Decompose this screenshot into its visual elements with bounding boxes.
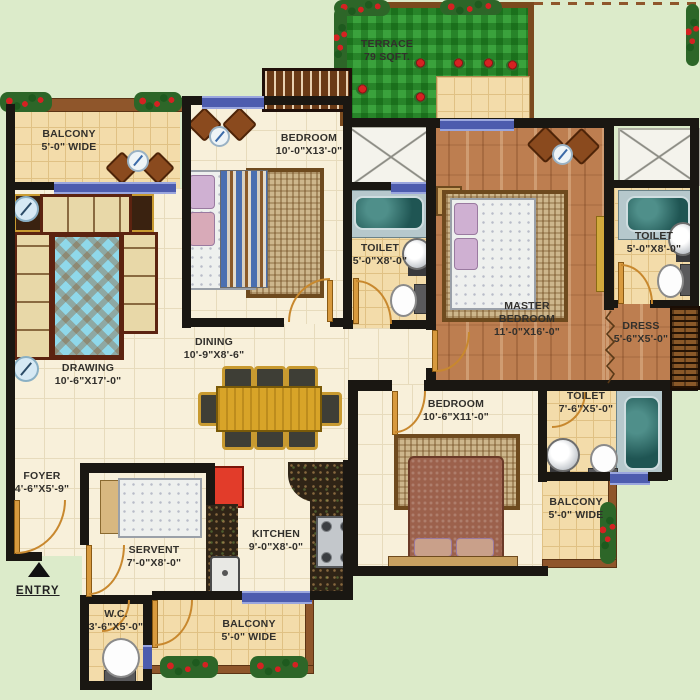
room-dim: 10'-6"X17'-0" <box>44 375 132 388</box>
wall-segment <box>152 591 244 600</box>
wall-segment <box>182 318 284 327</box>
room-label-dining: DINING 10'-9"X8'-6" <box>170 336 258 362</box>
wall-segment <box>538 472 614 481</box>
room-label-dress: DRESS 5'-6"X5'-0" <box>608 320 674 346</box>
room-dim: 5'-0" WIDE <box>30 141 108 154</box>
table-needle <box>558 149 568 160</box>
boundary-dashed-line <box>534 2 700 5</box>
room-dim: 3'-6"X5'-0" <box>86 621 146 634</box>
flower-garland <box>250 656 308 678</box>
room-dim: 5'-6"X5'-0" <box>608 333 674 346</box>
room-name: DRAWING <box>44 362 132 375</box>
toilet-icon <box>390 284 417 317</box>
carpet <box>50 232 124 360</box>
pillow <box>189 212 215 246</box>
ceiling-fan-icon <box>13 196 39 222</box>
room-label-toilet-left: TOILET 5'-0"X8'-0" <box>344 242 416 268</box>
window-glass <box>54 182 176 194</box>
wall-segment <box>143 669 152 690</box>
wall-segment <box>80 463 89 545</box>
room-label-servent: SERVENT 7'-0"X8'-0" <box>114 544 194 570</box>
flower-garland <box>334 8 347 74</box>
room-name: DINING <box>170 336 258 349</box>
flower-icon <box>452 58 465 69</box>
pillow <box>456 538 494 557</box>
pillow <box>100 480 120 534</box>
blanket <box>220 170 268 288</box>
wall-segment <box>614 180 698 188</box>
wall-segment <box>206 463 215 505</box>
room-dim: 10'-6"X11'-0" <box>414 411 498 424</box>
room-label-toilet-bottom: TOILET 7'-6"X5'-0" <box>550 390 622 416</box>
window-glass <box>610 472 650 485</box>
window-glass <box>391 182 427 194</box>
room-label-balcony-top-left: BALCONY 5'-0" WIDE <box>30 128 108 154</box>
room-dim: 5'-0" WIDE <box>204 631 294 644</box>
room-dim: 9'-0"X8'-0" <box>234 541 318 554</box>
flower-icon <box>356 84 369 95</box>
wardrobe-icon <box>262 68 352 112</box>
window-glass <box>202 96 264 109</box>
room-name: TERRACE <box>352 38 422 51</box>
table-needle <box>133 155 143 166</box>
wall-segment <box>604 118 614 310</box>
wall-segment <box>662 380 672 480</box>
bathtub-icon <box>624 396 660 470</box>
room-name: SERVENT <box>114 544 194 557</box>
burner <box>321 521 332 532</box>
pillow <box>414 538 452 557</box>
floor-passage <box>348 328 432 384</box>
flower-garland <box>160 656 218 678</box>
sink-icon <box>546 438 580 472</box>
floor-plan-canvas: BALCONY 5'-0" WIDE TERRACE 79 SQFT. BEDR… <box>0 0 700 700</box>
room-label-balcony-bottom-right: BALCONY 5'-0" WIDE <box>540 496 612 522</box>
flower-icon <box>506 60 519 71</box>
wall-segment <box>348 566 548 576</box>
sofa-icon <box>14 232 52 360</box>
wardrobe-icon <box>670 306 700 390</box>
room-name: MASTER BEDROOM <box>492 300 562 326</box>
pillow <box>189 175 215 209</box>
toilet-icon <box>657 264 684 298</box>
dining-table <box>216 386 322 432</box>
flower-garland <box>440 0 502 15</box>
wall-segment <box>80 463 214 473</box>
entry-label: ENTRY <box>16 585 60 597</box>
flower-icon <box>414 92 427 103</box>
room-label-master-bedroom: MASTER BEDROOM 11'-0"X16'-0" <box>478 300 576 339</box>
room-name: TOILET <box>344 242 416 255</box>
room-label-bedroom-top: BEDROOM 10'-0"X13'-0" <box>272 132 346 158</box>
room-label-wc: W.C. 3'-6"X5'-0" <box>86 608 146 634</box>
flower-garland <box>134 92 182 112</box>
window-glass <box>242 591 312 604</box>
room-dim: 7'-6"X5'-0" <box>550 403 622 416</box>
sofa-icon <box>40 194 132 236</box>
room-label-terrace: TERRACE 79 SQFT. <box>352 38 422 64</box>
toilet-icon <box>590 444 618 474</box>
room-name: DRESS <box>608 320 674 333</box>
room-label-balcony-bottom: BALCONY 5'-0" WIDE <box>204 618 294 644</box>
room-dim: 4'-6"X5'-9" <box>10 483 74 496</box>
sink-drain <box>222 570 228 576</box>
room-name: TOILET <box>618 230 690 243</box>
room-name: BALCONY <box>540 496 612 509</box>
room-label-foyer: FOYER 4'-6"X5'-9" <box>10 470 74 496</box>
wall-segment <box>343 320 353 329</box>
wall-segment <box>614 118 698 126</box>
ceiling-fan-icon <box>13 356 39 382</box>
flower-garland <box>686 4 699 66</box>
flower-icon <box>482 58 495 69</box>
round-table-icon <box>552 144 573 165</box>
fan-needle <box>20 362 32 376</box>
wall-segment <box>426 118 436 330</box>
room-name: BEDROOM <box>272 132 346 145</box>
wall-segment <box>14 182 56 190</box>
round-table-icon <box>127 150 149 172</box>
wall-segment <box>604 300 618 308</box>
room-dim: 7'-0"X8'-0" <box>114 557 194 570</box>
room-dim: 5'-0"X8'-0" <box>618 243 690 256</box>
room-dim: 5'-0" WIDE <box>540 509 612 522</box>
burner <box>321 552 332 563</box>
sofa-icon <box>118 232 158 334</box>
room-name: TOILET <box>550 390 622 403</box>
pillow <box>454 238 478 270</box>
room-name: BALCONY <box>204 618 294 631</box>
window-glass <box>440 119 514 131</box>
entry-arrow-icon <box>28 562 50 577</box>
room-label-bedroom-bottom: BEDROOM 10'-6"X11'-0" <box>414 398 498 424</box>
toilet-icon <box>102 638 140 678</box>
wall-segment <box>343 96 352 328</box>
round-table-icon <box>209 126 230 147</box>
room-dim: 10'-9"X8'-6" <box>170 349 258 362</box>
bathtub-icon <box>354 196 424 230</box>
room-name: FOYER <box>10 470 74 483</box>
room-dim: 10'-0"X13'-0" <box>272 145 346 158</box>
wall-segment <box>538 388 547 482</box>
wall-segment <box>343 118 436 127</box>
shaft-icon <box>348 126 434 188</box>
room-dim: 11'-0"X16'-0" <box>478 326 576 339</box>
room-label-drawing: DRAWING 10'-6"X17'-0" <box>44 362 132 388</box>
room-name: BALCONY <box>30 128 108 141</box>
room-name: W.C. <box>86 608 146 621</box>
wall-segment <box>343 460 353 600</box>
room-dim: 5'-0"X8'-0" <box>344 255 416 268</box>
bed <box>118 478 202 538</box>
room-name: BEDROOM <box>414 398 498 411</box>
wall-segment <box>182 96 191 328</box>
table-needle <box>215 131 225 142</box>
wall-segment <box>80 681 152 690</box>
fan-needle <box>20 202 32 216</box>
room-dim: 79 SQFT. <box>352 51 422 64</box>
room-label-toilet-right: TOILET 5'-0"X8'-0" <box>618 230 690 256</box>
pillow <box>454 203 478 235</box>
room-name: KITCHEN <box>234 528 318 541</box>
room-label-kitchen: KITCHEN 9'-0"X8'-0" <box>234 528 318 554</box>
shaft-icon <box>618 128 700 186</box>
wall-segment <box>6 552 42 561</box>
fridge-icon <box>210 466 244 508</box>
